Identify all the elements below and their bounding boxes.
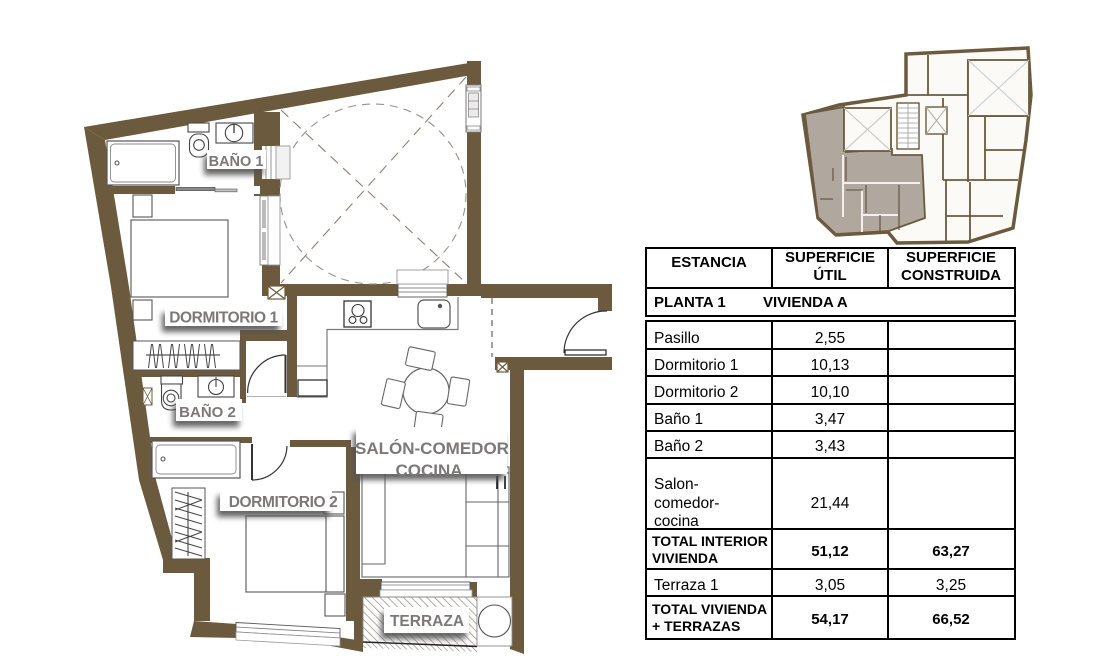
- svg-text:21,44: 21,44: [811, 495, 850, 512]
- svg-text:SALÓN-COMEDOR: SALÓN-COMEDOR: [355, 439, 509, 458]
- svg-text:BAÑO 1: BAÑO 1: [209, 152, 264, 170]
- svg-text:CONSTRUIDA: CONSTRUIDA: [901, 267, 1001, 284]
- svg-text:comedor-: comedor-: [654, 495, 719, 512]
- svg-text:PLANTA 1: PLANTA 1: [654, 294, 726, 311]
- svg-text:Salon-: Salon-: [654, 476, 699, 493]
- svg-text:10,13: 10,13: [811, 357, 850, 374]
- svg-text:3,05: 3,05: [815, 577, 845, 594]
- svg-text:+ TERRAZAS: + TERRAZAS: [652, 618, 740, 634]
- svg-text:TERRAZA: TERRAZA: [390, 613, 464, 630]
- svg-text:3,47: 3,47: [815, 411, 845, 428]
- svg-text:2,55: 2,55: [815, 330, 845, 347]
- svg-text:TOTAL INTERIOR: TOTAL INTERIOR: [652, 533, 768, 549]
- svg-text:3,43: 3,43: [815, 438, 845, 455]
- svg-text:Baño 1: Baño 1: [654, 411, 703, 428]
- svg-text:TOTAL VIVIENDA: TOTAL VIVIENDA: [652, 601, 767, 617]
- svg-text:54,17: 54,17: [811, 611, 849, 628]
- svg-text:COCINA: COCINA: [395, 461, 462, 480]
- svg-text:VIVIENDA: VIVIENDA: [652, 550, 718, 566]
- svg-text:Dormitorio 1: Dormitorio 1: [654, 357, 738, 374]
- svg-text:SUPERFICIE: SUPERFICIE: [906, 249, 996, 266]
- svg-text:cocina: cocina: [654, 513, 699, 530]
- svg-text:Dormitorio 2: Dormitorio 2: [654, 384, 738, 401]
- svg-text:Baño 2: Baño 2: [654, 438, 703, 455]
- svg-text:10,10: 10,10: [811, 384, 850, 401]
- svg-text:DORMITORIO 2: DORMITORIO 2: [229, 494, 338, 511]
- svg-text:63,27: 63,27: [932, 543, 970, 560]
- svg-text:66,52: 66,52: [932, 611, 970, 628]
- svg-text:Pasillo: Pasillo: [654, 330, 700, 347]
- svg-text:DORMITORIO 1: DORMITORIO 1: [169, 310, 278, 327]
- svg-text:SUPERFICIE: SUPERFICIE: [785, 249, 875, 266]
- svg-text:ÚTIL: ÚTIL: [813, 266, 846, 284]
- svg-text:ESTANCIA: ESTANCIA: [671, 254, 747, 271]
- svg-text:Terraza 1: Terraza 1: [654, 577, 719, 594]
- svg-text:3,25: 3,25: [936, 577, 966, 594]
- svg-text:BAÑO 2: BAÑO 2: [179, 403, 236, 421]
- svg-text:51,12: 51,12: [811, 543, 849, 560]
- svg-text:VIVIENDA A: VIVIENDA A: [763, 294, 848, 311]
